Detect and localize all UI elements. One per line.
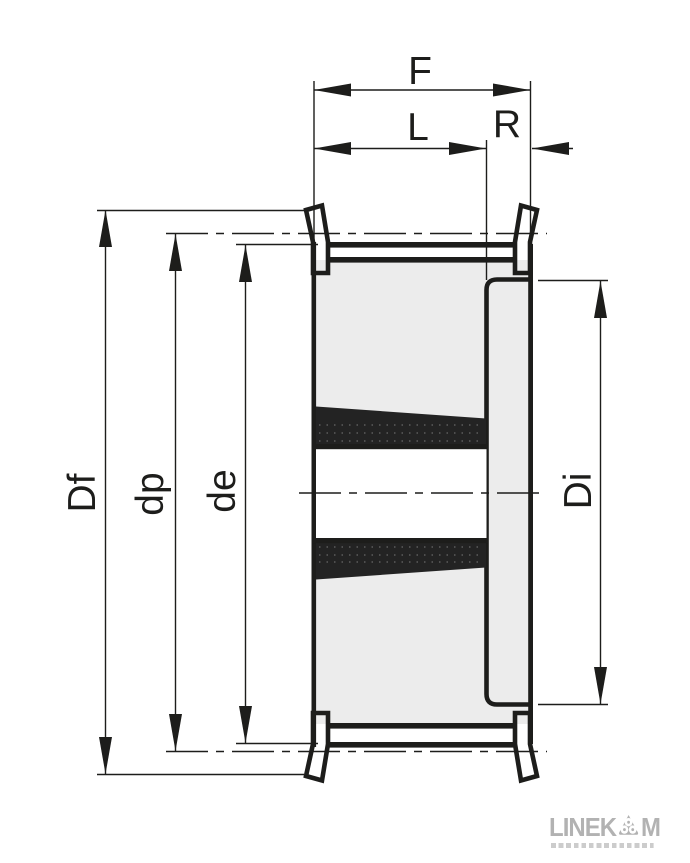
pitch-diameter-dimension-label: dp bbox=[129, 472, 172, 515]
arrowhead-L-right bbox=[449, 142, 486, 155]
logo-tagline-strip bbox=[551, 843, 654, 848]
tooth-root-line-top bbox=[327, 257, 516, 263]
bore-edge-top bbox=[313, 444, 489, 449]
recess-diameter-dimension-label: Di bbox=[557, 473, 600, 510]
arrowhead-Di-top bbox=[594, 281, 607, 318]
belt-width-dimension-label: L bbox=[407, 106, 429, 149]
total-width-dimension-label: F bbox=[408, 50, 432, 93]
hub-left-wall bbox=[312, 242, 317, 747]
arrowhead-R bbox=[532, 142, 569, 155]
recess-depth-dimension-label: R bbox=[493, 103, 521, 146]
flange-diameter-dimension-label: Df bbox=[61, 473, 104, 512]
tooth-gap-bottom bbox=[327, 729, 516, 743]
technical-drawing-canvas: F L R Df dp bbox=[0, 0, 690, 863]
arrowhead-dp-top bbox=[169, 234, 182, 271]
arrowhead-L-left bbox=[314, 142, 351, 155]
tooth-tip-line-top bbox=[327, 242, 516, 248]
arrowhead-Df-top bbox=[99, 210, 112, 247]
arrowhead-F-right bbox=[493, 84, 530, 97]
linekom-logo: LINEK M bbox=[549, 813, 674, 848]
arrowhead-F-left bbox=[314, 84, 351, 97]
arrowhead-Df-bottom bbox=[99, 737, 112, 774]
pulley-cross-section-drawing: F L R Df dp bbox=[0, 0, 690, 863]
bore-edge-bottom bbox=[313, 538, 489, 543]
logo-text-left: LINEK bbox=[549, 815, 616, 839]
arrowhead-Di-bottom bbox=[594, 667, 607, 704]
arrowhead-dp-bottom bbox=[169, 714, 182, 751]
hub-right-face-edge bbox=[528, 244, 533, 744]
tooth-gap-top bbox=[327, 248, 516, 258]
arrowhead-de-bottom bbox=[239, 706, 252, 743]
arrowhead-de-top bbox=[239, 245, 252, 282]
logo-text-right: M bbox=[641, 815, 660, 839]
outside-diameter-dimension-label: de bbox=[201, 469, 244, 512]
tooth-tip-line-bottom bbox=[327, 742, 516, 748]
pulley-rollers-icon bbox=[617, 813, 640, 841]
dimension-group-left: Df dp de bbox=[61, 210, 318, 775]
dimension-group-right: Di bbox=[538, 281, 608, 705]
tooth-root-line-bottom bbox=[327, 723, 516, 729]
